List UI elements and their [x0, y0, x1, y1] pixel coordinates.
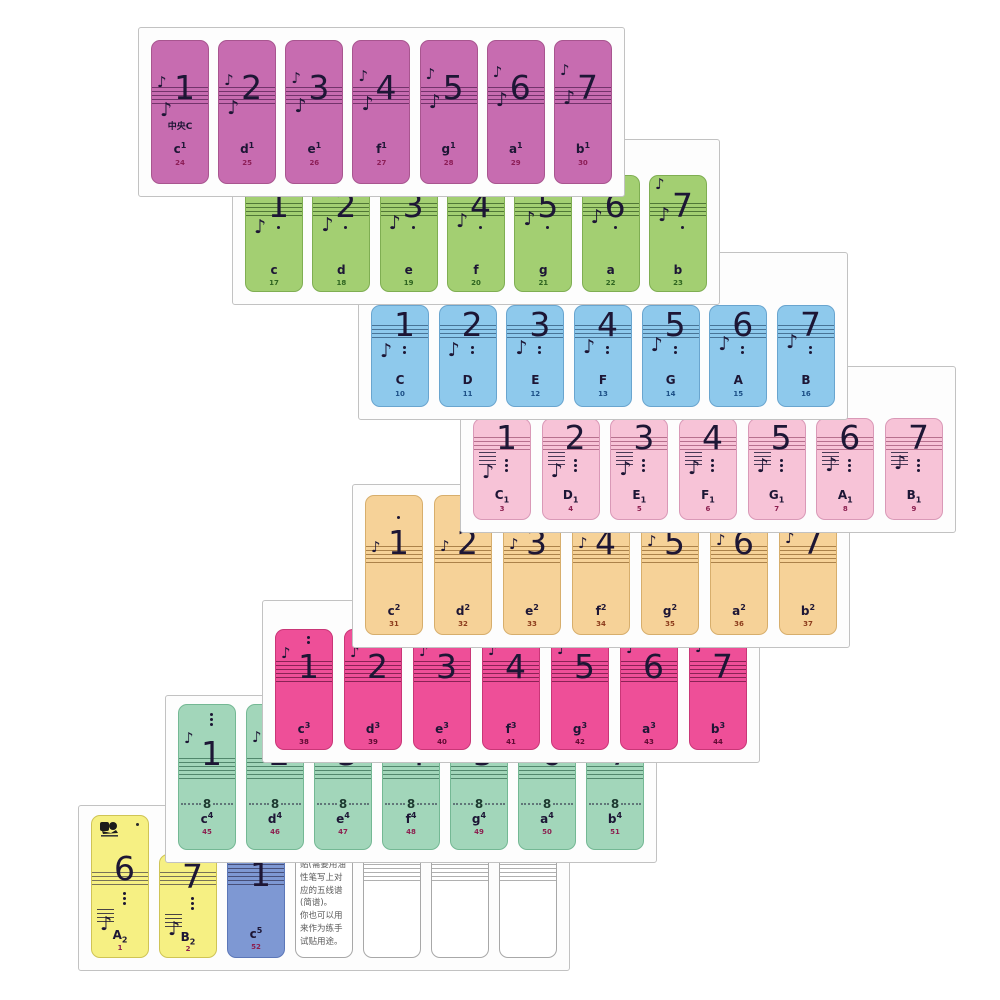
blank-sticker — [499, 854, 557, 958]
octave-dots-icon — [817, 459, 873, 472]
note-name: G1 — [749, 489, 805, 504]
octave-dots-icon — [92, 892, 148, 905]
note-letter: a — [607, 263, 615, 277]
sticker-number: 10 — [372, 391, 428, 398]
octave-dot — [809, 351, 812, 354]
staff-lines-icon — [432, 864, 488, 881]
jianpu-number: 7 — [886, 421, 942, 454]
sticker: ♪5G14 — [642, 305, 700, 407]
note-name: F — [575, 374, 631, 386]
octave-dot — [614, 226, 617, 229]
jianpu-number: 5 — [552, 650, 608, 683]
sticker-number: 42 — [552, 739, 608, 746]
sticker: ♪2D11 — [439, 305, 497, 407]
brand-dot-icon — [136, 823, 139, 826]
note-name: g2 — [642, 604, 698, 617]
note-octave-mark: 1 — [916, 495, 922, 504]
octave-dot — [642, 464, 645, 467]
note-letter: F — [599, 373, 607, 387]
jianpu-number: 7 — [160, 860, 216, 893]
sticker: ♪2D14 — [542, 418, 600, 520]
8va-label: 8 — [269, 798, 281, 810]
note-letter: g — [442, 142, 451, 156]
sticker: 贴(需要用油 性笔写上对 应的五线谱 (简谱)。 你也可以用 来作为练手 试贴用… — [295, 854, 353, 958]
note-octave-mark: 2 — [533, 603, 539, 612]
8va-dash-icon — [553, 803, 573, 805]
octave-dots-icon — [474, 459, 530, 472]
sticker: ♪7B16 — [777, 305, 835, 407]
octave-dot — [210, 718, 213, 721]
note-name: c — [246, 264, 302, 276]
note-name: d3 — [345, 722, 401, 735]
8va-label: 8 — [473, 798, 485, 810]
sticker-number: 37 — [780, 621, 836, 628]
sticker-number: 18 — [313, 280, 369, 287]
octave-dot — [780, 469, 783, 472]
sticker: ♪1C13 — [473, 418, 531, 520]
jianpu-number: 1 — [179, 737, 235, 770]
sticker-number: 11 — [440, 391, 496, 398]
sticker: ♪3E12 — [506, 305, 564, 407]
note-name: f2 — [573, 604, 629, 617]
8va-label: 8 — [609, 798, 621, 810]
sticker-number: 48 — [383, 829, 439, 836]
octave-dots-icon — [710, 346, 766, 354]
note-letter: d — [366, 722, 375, 736]
sticker-number: 15 — [710, 391, 766, 398]
sticker: 1c552 — [227, 854, 285, 958]
sticker-number: 19 — [381, 280, 437, 287]
8va-dash-icon — [249, 803, 269, 805]
sticker: ♪4F13 — [574, 305, 632, 407]
jianpu-number: 1 — [372, 308, 428, 341]
note-name: f1 — [353, 142, 409, 155]
8va-dash-icon — [349, 803, 369, 805]
note-octave-mark: 1 — [573, 495, 579, 504]
note-name: c5 — [228, 927, 284, 940]
jianpu-number: 5 — [643, 308, 699, 341]
sticker-number: 29 — [488, 160, 544, 167]
sticker-number: 23 — [650, 280, 706, 287]
sticker-number: 13 — [575, 391, 631, 398]
sticker-number: 41 — [483, 739, 539, 746]
note-letter: C — [495, 488, 504, 502]
jianpu-number: 1 — [366, 526, 422, 559]
octave-dot — [403, 351, 406, 354]
octave-dot — [123, 897, 126, 900]
jianpu-number: 1 — [474, 421, 530, 454]
sticker: ♪7B19 — [885, 418, 943, 520]
sticker-number: 22 — [583, 280, 639, 287]
sticker-number: 36 — [711, 621, 767, 628]
sticker-number: 38 — [276, 739, 332, 746]
blank-sticker — [431, 854, 489, 958]
note-name: A — [710, 374, 766, 386]
octave-dot — [538, 346, 541, 349]
sticker: ♪5G17 — [748, 418, 806, 520]
jianpu-number: 2 — [543, 421, 599, 454]
note-name: g — [515, 264, 571, 276]
sticker-number: 34 — [573, 621, 629, 628]
sticker-number: 17 — [246, 280, 302, 287]
sticker-number: 51 — [587, 829, 643, 836]
octave-dot — [344, 226, 347, 229]
8va-dash-icon — [181, 803, 201, 805]
octave-dots-icon — [381, 226, 437, 229]
note-octave-mark: 1 — [316, 141, 322, 150]
octave-8va-line: 8 — [521, 798, 573, 810]
note-letter: g — [539, 263, 548, 277]
note-letter: B — [801, 373, 810, 387]
note-name: c3 — [276, 722, 332, 735]
octave-dot — [505, 469, 508, 472]
note-letter: C — [396, 373, 405, 387]
note-letter: d — [268, 812, 277, 826]
note-letter: d — [456, 604, 465, 618]
note-octave-mark: 2 — [465, 603, 471, 612]
jianpu-number: 7 — [690, 650, 746, 683]
sticker: ♪18c445 — [178, 704, 236, 850]
octave-dot — [210, 713, 213, 716]
note-name: a2 — [711, 604, 767, 617]
octave-dot — [642, 469, 645, 472]
octave-dot — [412, 226, 415, 229]
sticker-number: 2 — [160, 946, 216, 953]
jianpu-number: 7 — [650, 189, 706, 222]
sticker-number: 43 — [621, 739, 677, 746]
staff-lines-icon — [364, 864, 420, 881]
octave-dot — [711, 469, 714, 472]
sticker-number: 8 — [817, 506, 873, 513]
note-name: f — [448, 264, 504, 276]
octave-dot — [574, 464, 577, 467]
8va-dash-icon — [485, 803, 505, 805]
sticker-number: 1 — [92, 945, 148, 952]
octave-dots-icon — [643, 346, 699, 354]
sticker: ♪♪4f127 — [352, 40, 410, 184]
note-name: C1 — [474, 489, 530, 504]
octave-dot — [711, 464, 714, 467]
octave-dots-icon — [583, 226, 639, 229]
jianpu-number: 2 — [219, 71, 275, 104]
sticker: ♪♪3e126 — [285, 40, 343, 184]
note-octave-mark: 1 — [641, 495, 647, 504]
note-name: a4 — [519, 812, 575, 825]
sticker: ♪3E15 — [610, 418, 668, 520]
note-octave-mark: 1 — [584, 141, 590, 150]
octave-dot — [848, 459, 851, 462]
jianpu-number: 3 — [414, 650, 470, 683]
octave-dots-icon — [611, 459, 667, 472]
note-name: E — [507, 374, 563, 386]
octave-dot — [307, 636, 310, 639]
sticker-number: 7 — [749, 506, 805, 513]
octave-8va-line: 8 — [589, 798, 641, 810]
octave-dot — [505, 459, 508, 462]
octave-dot — [546, 226, 549, 229]
note-letter: A — [838, 488, 847, 502]
octave-dots-icon — [543, 459, 599, 472]
note-letter: A — [113, 928, 122, 942]
sticker-number: 16 — [778, 391, 834, 398]
jianpu-number: 1 — [152, 71, 208, 104]
sticker-row: ♪♪1中央Cc124♪♪2d125♪♪3e126♪♪4f127♪♪5g128♪♪… — [139, 28, 624, 196]
note-octave-mark: 1 — [709, 495, 715, 504]
sticker: ♪1c338 — [275, 629, 333, 750]
note-letter: G — [769, 488, 779, 502]
middle-c-label: 中央C — [152, 123, 208, 132]
note-name: E1 — [611, 489, 667, 504]
note-name: G — [643, 374, 699, 386]
note-name: B1 — [886, 489, 942, 504]
octave-dots-icon — [246, 226, 302, 229]
octave-dots-icon — [372, 346, 428, 354]
octave-dots-icon — [160, 897, 216, 910]
8va-dash-icon — [453, 803, 473, 805]
piano-sticker-product-image: ♪♪1中央Cc124♪♪2d125♪♪3e126♪♪4f127♪♪5g128♪♪… — [0, 0, 1000, 1000]
note-name: e1 — [286, 142, 342, 155]
sticker: 7♪B22 — [159, 854, 217, 958]
note-name: b3 — [690, 722, 746, 735]
8va-dash-icon — [621, 803, 641, 805]
sticker: ♪♪1中央Cc124 — [151, 40, 209, 184]
note-name: e3 — [414, 722, 470, 735]
note-name: c2 — [366, 604, 422, 617]
note-letter: A — [734, 373, 743, 387]
note-octave-mark: 1 — [847, 495, 853, 504]
brand-logo-icon — [99, 821, 125, 842]
octave-dot — [191, 902, 194, 905]
sticker: ♪1c231 — [365, 495, 423, 635]
octave-dot — [574, 469, 577, 472]
octave-dot — [741, 346, 744, 349]
note-octave-mark: 1 — [450, 141, 456, 150]
octave-8va-line: 8 — [181, 798, 233, 810]
note-octave-mark: 2 — [122, 935, 128, 944]
jianpu-number: 3 — [507, 308, 563, 341]
note-letter: e — [307, 142, 315, 156]
octave-dots-icon — [778, 346, 834, 354]
note-octave-mark: 4 — [411, 811, 417, 820]
8va-label: 8 — [337, 798, 349, 810]
note-name: a3 — [621, 722, 677, 735]
octave-dot — [123, 892, 126, 895]
8va-label: 8 — [201, 798, 213, 810]
octave-dot — [711, 459, 714, 462]
note-octave-mark: 2 — [601, 603, 607, 612]
sticker-number: 12 — [507, 391, 563, 398]
sticker-number: 9 — [886, 506, 942, 513]
sticker-number: 4 — [543, 506, 599, 513]
jianpu-number: 6 — [92, 852, 148, 885]
jianpu-number: 5 — [749, 421, 805, 454]
note-octave-mark: 3 — [650, 721, 656, 730]
octave-dot — [307, 641, 310, 644]
blank-sticker — [363, 854, 421, 958]
note-name: f4 — [383, 812, 439, 825]
sticker-number: 27 — [353, 160, 409, 167]
octave-8va-line: 8 — [453, 798, 505, 810]
note-letter: D — [463, 373, 473, 387]
staff-lines-icon — [500, 864, 556, 881]
octave-dot — [123, 902, 126, 905]
octave-dot — [917, 469, 920, 472]
note-letter: g — [472, 812, 481, 826]
note-name: e4 — [315, 812, 371, 825]
sticker-number: 31 — [366, 621, 422, 628]
note-octave-mark: 5 — [257, 926, 263, 935]
octave-dot — [191, 907, 194, 910]
note-name: g3 — [552, 722, 608, 735]
octave-8va-line: 8 — [249, 798, 301, 810]
jianpu-number: 4 — [483, 650, 539, 683]
note-octave-mark: 1 — [381, 141, 387, 150]
octave-dots-icon — [276, 636, 332, 644]
octave-dots-icon — [680, 459, 736, 472]
note-name: d — [313, 264, 369, 276]
note-letter: c — [270, 263, 277, 277]
note-letter: g — [663, 604, 672, 618]
note-name: b2 — [780, 604, 836, 617]
sticker-number: 20 — [448, 280, 504, 287]
sticker-number: 25 — [219, 160, 275, 167]
sticker-number: 32 — [435, 621, 491, 628]
note-name: b — [650, 264, 706, 276]
octave-dot — [848, 469, 851, 472]
octave-dot — [780, 464, 783, 467]
octave-dot — [780, 459, 783, 462]
octave-dot — [403, 346, 406, 349]
note-octave-mark: 1 — [181, 141, 187, 150]
octave-dot — [917, 464, 920, 467]
octave-dot — [674, 351, 677, 354]
note-name: g1 — [421, 142, 477, 155]
jianpu-number: 6 — [621, 650, 677, 683]
8va-label: 8 — [405, 798, 417, 810]
8va-dash-icon — [213, 803, 233, 805]
instruction-text: 贴(需要用油 性笔写上对 应的五线谱 (简谱)。 你也可以用 来作为练手 试贴用… — [300, 859, 348, 953]
8va-dash-icon — [521, 803, 541, 805]
jianpu-number: 4 — [680, 421, 736, 454]
note-name: D1 — [543, 489, 599, 504]
note-letter: E — [531, 373, 539, 387]
octave-dot — [538, 351, 541, 354]
8va-dash-icon — [281, 803, 301, 805]
sticker-number: 44 — [690, 739, 746, 746]
note-octave-mark: 4 — [344, 811, 350, 820]
sticker-number: 21 — [515, 280, 571, 287]
sticker-number: 14 — [643, 391, 699, 398]
note-letter: f — [473, 263, 478, 277]
note-name: D — [440, 374, 496, 386]
note-octave-mark: 3 — [375, 721, 381, 730]
octave-dots-icon — [440, 346, 496, 354]
sticker-number: 28 — [421, 160, 477, 167]
octave-dot — [397, 516, 400, 519]
note-octave-mark: 3 — [305, 721, 311, 730]
note-octave-mark: 2 — [395, 603, 401, 612]
octave-dot — [606, 346, 609, 349]
sticker-number: 5 — [611, 506, 667, 513]
note-octave-mark: 1 — [517, 141, 523, 150]
note-octave-mark: 4 — [208, 811, 214, 820]
note-octave-mark: 3 — [511, 721, 517, 730]
octave-dot — [681, 226, 684, 229]
octave-dot — [479, 226, 482, 229]
note-octave-mark: 1 — [504, 495, 510, 504]
note-name: d2 — [435, 604, 491, 617]
8va-dash-icon — [317, 803, 337, 805]
note-octave-mark: 4 — [617, 811, 623, 820]
octave-dot — [848, 464, 851, 467]
jianpu-number: 6 — [488, 71, 544, 104]
note-letter: b — [711, 722, 720, 736]
sticker: ♪6A15 — [709, 305, 767, 407]
jianpu-number: 7 — [778, 308, 834, 341]
sticker-number: 24 — [152, 160, 208, 167]
sticker-number: 35 — [642, 621, 698, 628]
note-name: F1 — [680, 489, 736, 504]
note-letter: c — [388, 604, 395, 618]
jianpu-number: 1 — [276, 650, 332, 683]
sticker-number: 52 — [228, 944, 284, 951]
note-octave-mark: 1 — [779, 495, 785, 504]
octave-8va-line: 8 — [317, 798, 369, 810]
note-name: b1 — [555, 142, 611, 155]
note-letter: g — [573, 722, 582, 736]
note-name: a — [583, 264, 639, 276]
octave-dot — [471, 346, 474, 349]
jianpu-number: 3 — [286, 71, 342, 104]
sticker: ♪♪7b23 — [649, 175, 707, 292]
note-octave-mark: 3 — [443, 721, 449, 730]
sticker: ♪♪2d125 — [218, 40, 276, 184]
note-octave-mark: 2 — [672, 603, 678, 612]
octave-dot — [606, 351, 609, 354]
jianpu-number: 3 — [611, 421, 667, 454]
octave-dots-icon — [179, 713, 235, 726]
sticker-number: 50 — [519, 829, 575, 836]
sticker: ♪♪5g128 — [420, 40, 478, 184]
note-name: c1 — [152, 142, 208, 155]
note-name: e2 — [504, 604, 560, 617]
octave-dots-icon — [515, 226, 571, 229]
jianpu-number: 5 — [421, 71, 477, 104]
sticker-number: 30 — [555, 160, 611, 167]
note-name: A1 — [817, 489, 873, 504]
sticker: ♪4F16 — [679, 418, 737, 520]
octave-dot — [809, 346, 812, 349]
note-letter: b — [801, 604, 810, 618]
sticker-number: 46 — [247, 829, 303, 836]
note-name: d1 — [219, 142, 275, 155]
octave-dots-icon — [448, 226, 504, 229]
note-octave-mark: 3 — [720, 721, 726, 730]
octave-dot — [471, 351, 474, 354]
sticker-sheet: ♪♪1中央Cc124♪♪2d125♪♪3e126♪♪4f127♪♪5g128♪♪… — [138, 27, 625, 197]
jianpu-number: 4 — [575, 308, 631, 341]
note-letter: B — [181, 930, 190, 944]
note-letter: b — [608, 812, 617, 826]
note-name: f3 — [483, 722, 539, 735]
note-name: c4 — [179, 812, 235, 825]
sticker: ♪♪6a129 — [487, 40, 545, 184]
note-letter: d — [337, 263, 346, 277]
note-letter: D — [563, 488, 573, 502]
octave-dots-icon — [749, 459, 805, 472]
note-name: g4 — [451, 812, 507, 825]
note-name: e — [381, 264, 437, 276]
